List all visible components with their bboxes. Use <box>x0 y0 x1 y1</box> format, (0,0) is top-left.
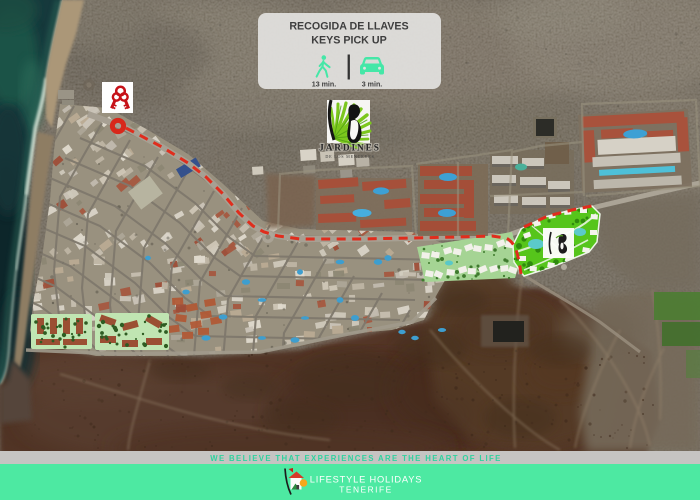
svg-text:WE BELIEVE THAT EXPERIENCES AR: WE BELIEVE THAT EXPERIENCES ARE THE HEAR… <box>210 454 501 463</box>
svg-text:RECOGIDA DE LLAVES: RECOGIDA DE LLAVES <box>289 21 408 33</box>
svg-text:TENERIFE: TENERIFE <box>339 485 392 495</box>
svg-text:JARDINES: JARDINES <box>319 144 381 154</box>
svg-text:13 min.: 13 min. <box>312 81 336 89</box>
svg-text:3 min.: 3 min. <box>362 81 383 89</box>
svg-text:DE LOS MENCEYES: DE LOS MENCEYES <box>325 154 374 159</box>
svg-text:LIFESTYLE HOLIDAYS: LIFESTYLE HOLIDAYS <box>310 475 422 485</box>
svg-text:KEYS PICK UP: KEYS PICK UP <box>311 35 386 47</box>
